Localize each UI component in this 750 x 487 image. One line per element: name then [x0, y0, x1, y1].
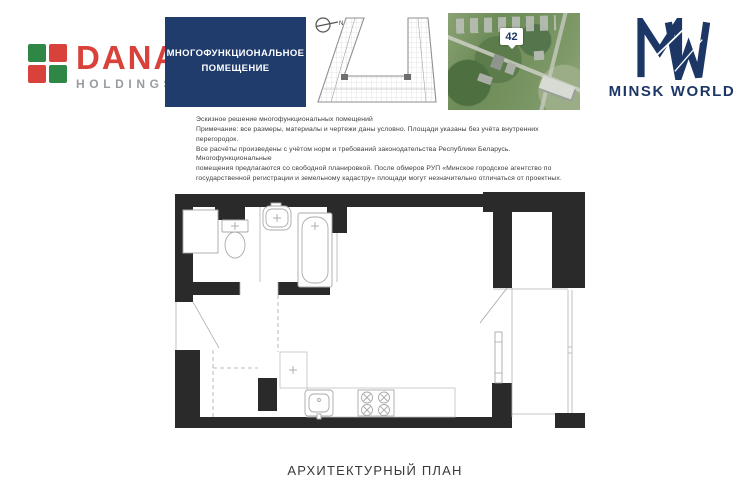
bathtub	[298, 213, 332, 287]
building-footprint-drawing: N	[312, 12, 442, 109]
dana-wordmark: DANA HOLDINGS	[76, 42, 179, 91]
building	[477, 73, 493, 85]
disclaimer-line: Эскизное решение многофункциональных пом…	[196, 115, 568, 125]
disclaimer-line: государственной регистрации и земельному…	[196, 174, 568, 184]
floor-plan-drawing	[175, 192, 585, 437]
dana-holdings-logo: DANA HOLDINGS	[28, 42, 179, 91]
svg-text:N: N	[339, 21, 343, 27]
aerial-site-image: 42	[448, 13, 580, 110]
dana-squares-icon	[28, 44, 67, 83]
square-green-icon	[28, 44, 46, 62]
unit-type-title-box: МНОГОФУНКЦИОНАЛЬНОЕ ПОМЕЩЕНИЕ	[165, 17, 306, 107]
building-key-plan: N	[312, 12, 442, 109]
dana-brand-text: DANA	[76, 42, 179, 73]
mw-monogram-icon	[634, 18, 710, 80]
building	[504, 62, 516, 75]
toilet	[222, 220, 248, 258]
disclaimer-line: Все расчёты произведены с учётом норм и …	[196, 145, 568, 165]
kitchen-sink	[305, 390, 333, 419]
minsk-world-wordmark: MINSK WORLD	[609, 83, 736, 100]
disclaimer-line: Примечание: все размеры, материалы и чер…	[196, 125, 568, 145]
square-green-icon	[49, 65, 67, 83]
page-title: АРХИТЕКТУРНЫЙ ПЛАН	[0, 463, 750, 478]
square-red-icon	[49, 44, 67, 62]
wash-basin	[263, 203, 291, 230]
balcony-door	[495, 332, 502, 383]
north-arrow-icon: N	[316, 18, 343, 32]
square-red-icon	[28, 65, 46, 83]
house-number-marker: 42	[500, 28, 523, 45]
door-swings	[193, 288, 507, 348]
stove	[358, 390, 394, 416]
reference-cross	[289, 366, 297, 374]
plan-sheet: DANA HOLDINGS МНОГОФУНКЦИОНАЛЬНОЕ ПОМЕЩЕ…	[0, 0, 750, 487]
building	[534, 51, 545, 61]
apartment-floor-plan	[175, 192, 585, 442]
dana-subtitle-text: HOLDINGS	[76, 77, 179, 91]
fixtures	[183, 203, 394, 419]
washing-machine	[183, 210, 218, 253]
unit-type-line2: ПОМЕЩЕНИЕ	[201, 62, 269, 77]
disclaimer-text: Эскизное решение многофункциональных пом…	[196, 115, 568, 184]
unit-type-line1: МНОГОФУНКЦИОНАЛЬНОЕ	[167, 47, 305, 62]
minsk-world-logo: MINSK WORLD	[608, 18, 736, 108]
disclaimer-line: помещения предлагаются со свободной план…	[196, 164, 568, 174]
